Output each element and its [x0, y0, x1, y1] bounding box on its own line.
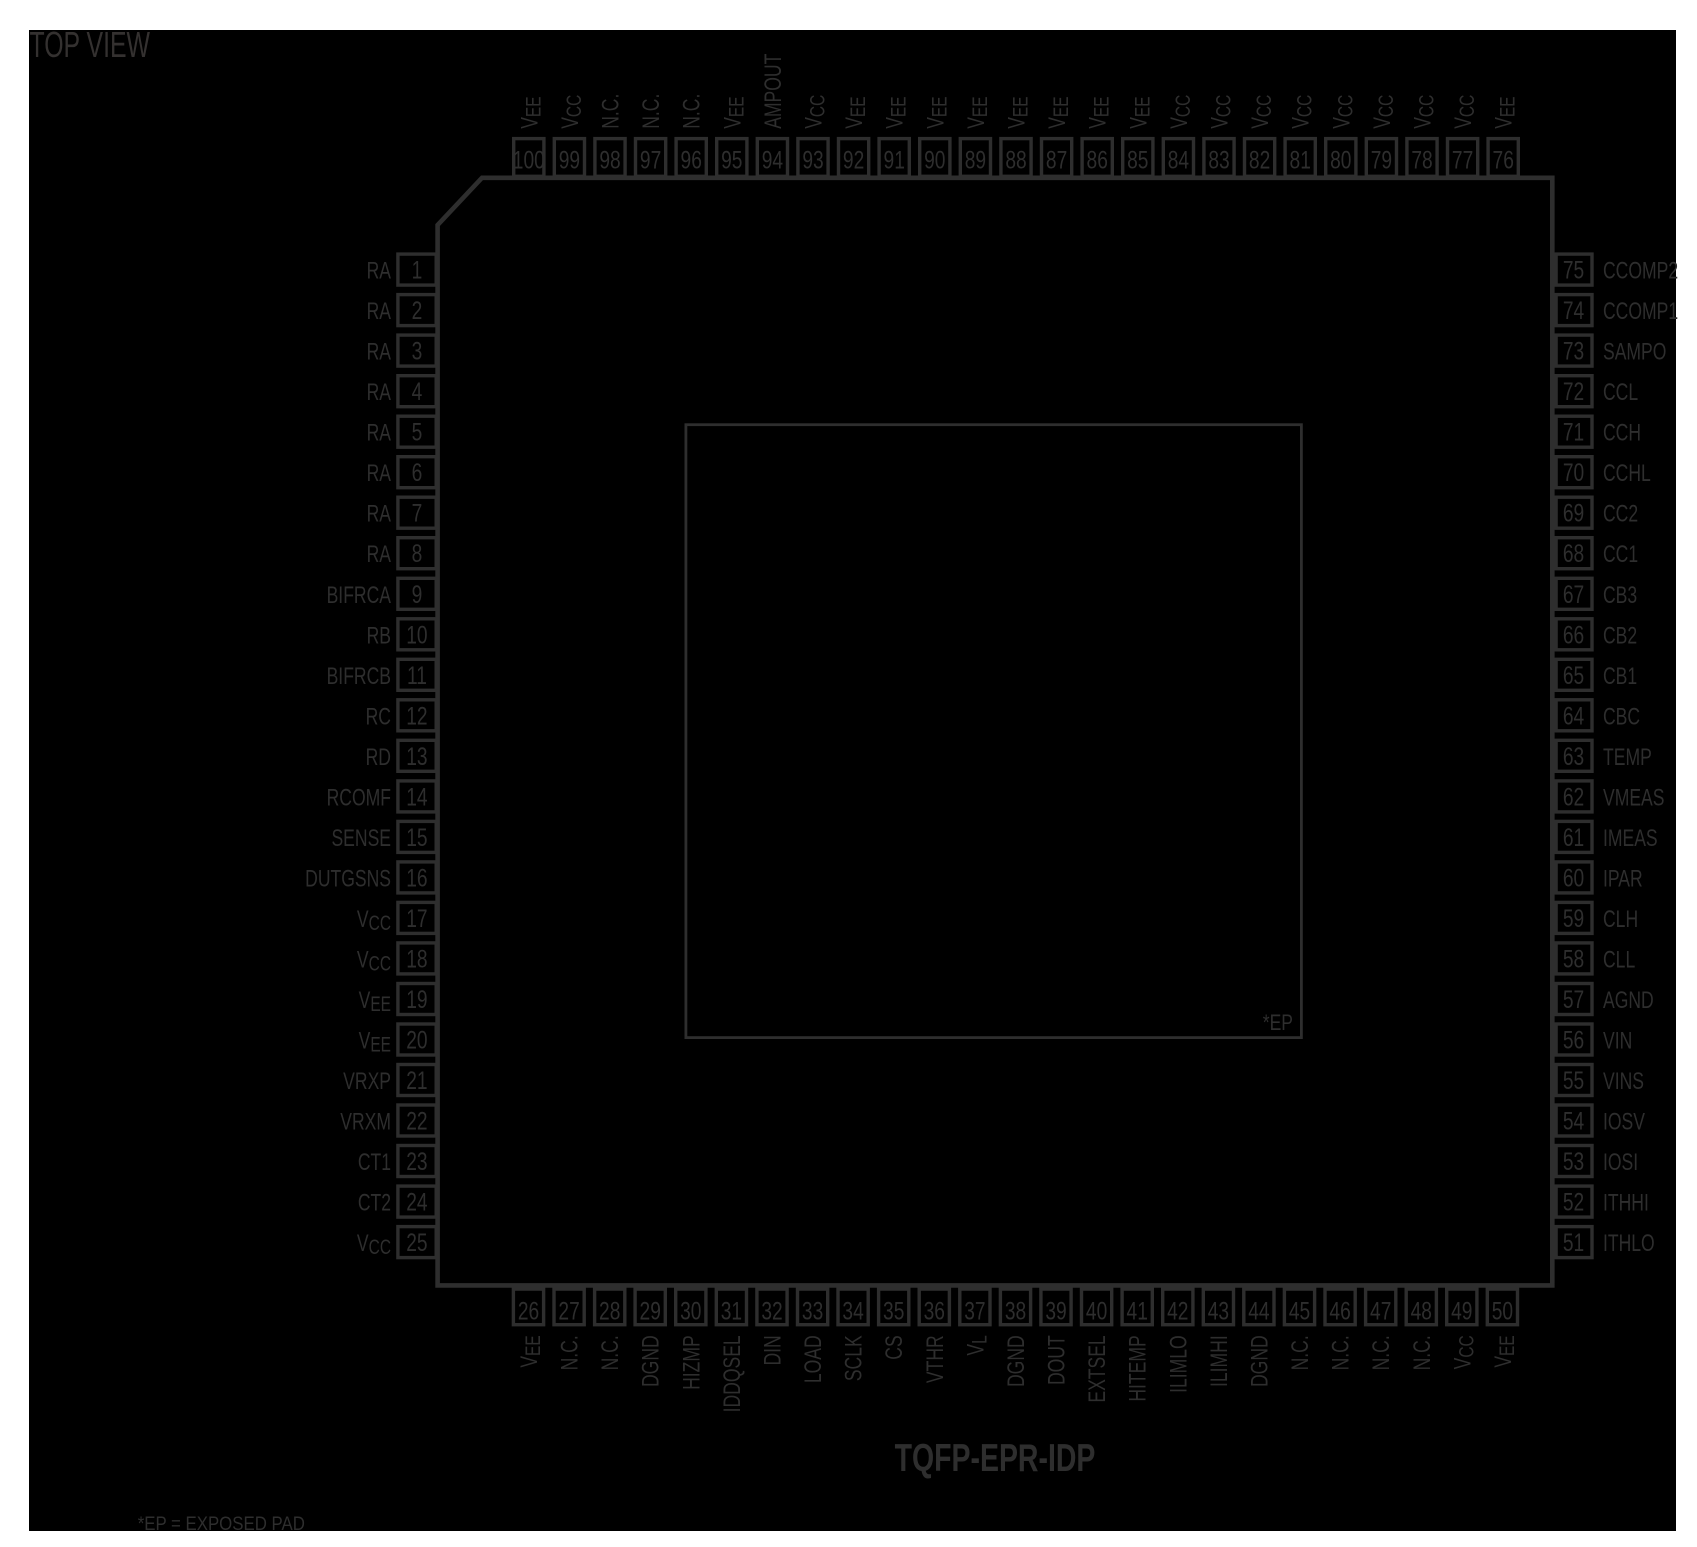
- svg-text:LOAD: LOAD: [799, 1335, 827, 1383]
- svg-text:91: 91: [884, 146, 905, 174]
- svg-text:49: 49: [1451, 1297, 1472, 1325]
- svg-text:93: 93: [802, 146, 823, 174]
- svg-text:CLL: CLL: [1603, 946, 1635, 974]
- svg-text:66: 66: [1563, 621, 1584, 649]
- svg-text:16: 16: [406, 864, 427, 892]
- svg-text:VCC: VCC: [800, 95, 829, 129]
- svg-text:VCC: VCC: [1327, 95, 1356, 129]
- svg-text:73: 73: [1563, 337, 1584, 365]
- svg-text:N.C.: N.C.: [556, 1335, 584, 1370]
- svg-text:18: 18: [406, 945, 427, 973]
- svg-text:VCC: VCC: [1206, 95, 1235, 129]
- svg-text:VCC: VCC: [357, 946, 391, 975]
- svg-text:BIFRCB: BIFRCB: [327, 662, 391, 690]
- svg-text:12: 12: [406, 702, 427, 730]
- svg-text:*EP = EXPOSED PAD: *EP = EXPOSED PAD: [138, 1511, 305, 1534]
- svg-text:RA: RA: [367, 459, 392, 487]
- svg-text:34: 34: [842, 1297, 863, 1325]
- svg-text:N.C.: N.C.: [1408, 1335, 1436, 1370]
- svg-text:78: 78: [1411, 146, 1432, 174]
- svg-text:RA: RA: [367, 378, 392, 406]
- svg-text:SAMPO: SAMPO: [1603, 338, 1666, 366]
- svg-text:54: 54: [1563, 1107, 1584, 1135]
- svg-text:85: 85: [1127, 146, 1148, 174]
- svg-text:22: 22: [406, 1107, 427, 1135]
- svg-text:CCOMP1: CCOMP1: [1603, 297, 1678, 325]
- svg-text:86: 86: [1087, 146, 1108, 174]
- svg-text:DGND: DGND: [1246, 1335, 1274, 1387]
- svg-text:CLH: CLH: [1603, 905, 1638, 933]
- svg-text:BIFRCA: BIFRCA: [327, 581, 392, 609]
- svg-text:VCC: VCC: [1368, 95, 1397, 129]
- svg-text:48: 48: [1411, 1297, 1432, 1325]
- svg-text:15: 15: [406, 824, 427, 852]
- svg-text:62: 62: [1563, 783, 1584, 811]
- svg-text:RA: RA: [367, 540, 392, 568]
- svg-text:70: 70: [1563, 459, 1584, 487]
- svg-text:IMEAS: IMEAS: [1603, 824, 1658, 852]
- svg-text:CCL: CCL: [1603, 378, 1638, 406]
- svg-text:VCC: VCC: [1246, 95, 1275, 129]
- svg-text:20: 20: [406, 1026, 427, 1054]
- svg-text:36: 36: [924, 1297, 945, 1325]
- svg-text:RA: RA: [367, 257, 392, 285]
- svg-text:VCC: VCC: [556, 95, 585, 129]
- svg-text:87: 87: [1046, 146, 1067, 174]
- svg-text:CT1: CT1: [358, 1148, 391, 1176]
- svg-text:TQFP-EPR-IDP: TQFP-EPR-IDP: [895, 1437, 1096, 1480]
- svg-text:CCOMP2: CCOMP2: [1603, 257, 1678, 285]
- svg-text:IOSI: IOSI: [1603, 1148, 1638, 1176]
- svg-text:VEE: VEE: [962, 96, 991, 128]
- svg-text:83: 83: [1208, 146, 1229, 174]
- svg-text:4: 4: [412, 378, 423, 406]
- svg-text:32: 32: [761, 1297, 782, 1325]
- svg-text:VCC: VCC: [1409, 95, 1438, 129]
- svg-text:88: 88: [1005, 146, 1026, 174]
- svg-text:71: 71: [1563, 418, 1584, 446]
- svg-text:65: 65: [1563, 661, 1584, 689]
- svg-text:57: 57: [1563, 986, 1584, 1014]
- svg-text:80: 80: [1330, 146, 1351, 174]
- svg-text:2: 2: [412, 297, 423, 325]
- svg-text:44: 44: [1248, 1297, 1269, 1325]
- svg-text:AMPOUT: AMPOUT: [759, 54, 787, 129]
- svg-text:92: 92: [843, 146, 864, 174]
- svg-text:9: 9: [412, 580, 423, 608]
- svg-text:1: 1: [412, 256, 423, 284]
- svg-text:13: 13: [406, 742, 427, 770]
- svg-text:N.C.: N.C.: [597, 94, 625, 129]
- svg-text:VEE: VEE: [515, 96, 544, 128]
- svg-text:55: 55: [1563, 1067, 1584, 1095]
- svg-text:SENSE: SENSE: [331, 824, 391, 852]
- svg-text:84: 84: [1168, 146, 1189, 174]
- svg-text:CS: CS: [880, 1335, 908, 1359]
- svg-text:98: 98: [599, 146, 620, 174]
- svg-text:19: 19: [406, 986, 427, 1014]
- svg-text:26: 26: [518, 1297, 539, 1325]
- svg-text:95: 95: [721, 146, 742, 174]
- svg-text:VEE: VEE: [1489, 1335, 1518, 1367]
- svg-text:56: 56: [1563, 1026, 1584, 1054]
- svg-text:90: 90: [924, 146, 945, 174]
- svg-text:DGND: DGND: [637, 1335, 665, 1387]
- svg-text:17: 17: [406, 905, 427, 933]
- svg-text:HIZMP: HIZMP: [677, 1335, 705, 1390]
- svg-text:RA: RA: [367, 338, 392, 366]
- svg-text:DOUT: DOUT: [1043, 1335, 1071, 1385]
- svg-text:N.C.: N.C.: [1327, 1335, 1355, 1370]
- svg-text:6: 6: [412, 459, 423, 487]
- svg-text:CT2: CT2: [358, 1189, 391, 1217]
- svg-text:VIN: VIN: [1603, 1027, 1632, 1055]
- svg-text:68: 68: [1563, 540, 1584, 568]
- svg-text:VEE: VEE: [881, 96, 910, 128]
- svg-text:79: 79: [1371, 146, 1392, 174]
- svg-text:59: 59: [1563, 905, 1584, 933]
- svg-text:IPAR: IPAR: [1603, 865, 1643, 893]
- svg-text:77: 77: [1452, 146, 1473, 174]
- svg-text:RC: RC: [366, 702, 391, 730]
- svg-text:N.C.: N.C.: [596, 1335, 624, 1370]
- svg-text:CC2: CC2: [1603, 500, 1638, 528]
- svg-text:10: 10: [406, 621, 427, 649]
- svg-text:N.C.: N.C.: [1367, 1335, 1395, 1370]
- svg-text:CB3: CB3: [1603, 581, 1637, 609]
- svg-text:VEE: VEE: [1490, 96, 1519, 128]
- svg-text:RA: RA: [367, 419, 392, 447]
- svg-text:RB: RB: [367, 621, 391, 649]
- svg-text:N.C.: N.C.: [678, 94, 706, 129]
- svg-text:RCOMF: RCOMF: [327, 784, 391, 812]
- svg-text:VEE: VEE: [1084, 96, 1113, 128]
- svg-text:63: 63: [1563, 742, 1584, 770]
- svg-text:61: 61: [1563, 824, 1584, 852]
- svg-text:ITHLO: ITHLO: [1603, 1229, 1655, 1257]
- svg-text:51: 51: [1563, 1229, 1584, 1257]
- svg-text:AGND: AGND: [1603, 986, 1654, 1014]
- svg-text:8: 8: [412, 540, 423, 568]
- svg-text:7: 7: [412, 499, 423, 527]
- svg-text:N.C.: N.C.: [1286, 1335, 1314, 1370]
- svg-text:96: 96: [681, 146, 702, 174]
- svg-text:VINS: VINS: [1603, 1067, 1644, 1095]
- svg-text:RA: RA: [367, 500, 392, 528]
- svg-text:74: 74: [1563, 297, 1584, 325]
- svg-text:SCLK: SCLK: [840, 1335, 868, 1381]
- svg-text:DIN: DIN: [759, 1335, 787, 1365]
- svg-text:97: 97: [640, 146, 661, 174]
- svg-text:*EP: *EP: [1263, 1011, 1293, 1036]
- svg-text:CCHL: CCHL: [1603, 459, 1651, 487]
- svg-text:100: 100: [513, 146, 545, 174]
- svg-text:37: 37: [964, 1297, 985, 1325]
- svg-text:28: 28: [599, 1297, 620, 1325]
- svg-text:35: 35: [883, 1297, 904, 1325]
- svg-text:89: 89: [965, 146, 986, 174]
- svg-text:VEE: VEE: [1003, 96, 1032, 128]
- svg-text:VRXP: VRXP: [343, 1067, 391, 1095]
- svg-text:VCC: VCC: [1448, 1335, 1477, 1369]
- svg-text:47: 47: [1370, 1297, 1391, 1325]
- svg-text:33: 33: [802, 1297, 823, 1325]
- svg-text:11: 11: [407, 661, 427, 689]
- svg-text:43: 43: [1208, 1297, 1229, 1325]
- svg-text:60: 60: [1563, 864, 1584, 892]
- svg-text:VMEAS: VMEAS: [1603, 784, 1664, 812]
- svg-text:42: 42: [1167, 1297, 1188, 1325]
- svg-text:VCC: VCC: [357, 1229, 391, 1258]
- svg-text:VEE: VEE: [718, 96, 747, 128]
- svg-text:VCC: VCC: [1165, 95, 1194, 129]
- svg-text:14: 14: [406, 783, 427, 811]
- svg-text:53: 53: [1563, 1148, 1584, 1176]
- svg-text:29: 29: [640, 1297, 661, 1325]
- svg-text:52: 52: [1563, 1188, 1584, 1216]
- svg-text:76: 76: [1493, 146, 1514, 174]
- svg-text:64: 64: [1563, 702, 1584, 730]
- svg-text:VEE: VEE: [840, 96, 869, 128]
- svg-text:CC1: CC1: [1603, 540, 1638, 568]
- svg-text:VEE: VEE: [921, 96, 950, 128]
- svg-text:VEE: VEE: [359, 1027, 391, 1056]
- svg-text:94: 94: [762, 146, 783, 174]
- svg-text:VEE: VEE: [1124, 96, 1153, 128]
- svg-text:69: 69: [1563, 499, 1584, 527]
- svg-text:ILIMHI: ILIMHI: [1205, 1335, 1233, 1387]
- svg-text:30: 30: [680, 1297, 701, 1325]
- svg-text:VCC: VCC: [1449, 95, 1478, 129]
- svg-text:31: 31: [721, 1297, 742, 1325]
- svg-text:IOSV: IOSV: [1603, 1108, 1646, 1136]
- svg-text:72: 72: [1563, 378, 1584, 406]
- svg-text:45: 45: [1289, 1297, 1310, 1325]
- svg-text:82: 82: [1249, 146, 1270, 174]
- svg-text:40: 40: [1086, 1297, 1107, 1325]
- svg-text:50: 50: [1492, 1297, 1513, 1325]
- svg-text:RD: RD: [366, 743, 391, 771]
- svg-text:38: 38: [1005, 1297, 1026, 1325]
- svg-text:VTHR: VTHR: [921, 1335, 949, 1383]
- svg-text:VEE: VEE: [359, 986, 391, 1015]
- svg-text:75: 75: [1563, 256, 1584, 284]
- svg-text:EXTSEL: EXTSEL: [1083, 1335, 1111, 1402]
- svg-text:81: 81: [1290, 146, 1311, 174]
- svg-text:DGND: DGND: [1002, 1335, 1030, 1387]
- svg-text:99: 99: [559, 146, 580, 174]
- svg-text:RA: RA: [367, 297, 392, 325]
- svg-text:25: 25: [406, 1229, 427, 1257]
- svg-text:CCH: CCH: [1603, 419, 1641, 447]
- svg-text:27: 27: [558, 1297, 579, 1325]
- svg-text:ITHHI: ITHHI: [1603, 1189, 1649, 1217]
- svg-text:58: 58: [1563, 945, 1584, 973]
- svg-text:TOP VIEW: TOP VIEW: [30, 24, 151, 65]
- svg-text:23: 23: [406, 1148, 427, 1176]
- svg-text:5: 5: [412, 418, 423, 446]
- svg-text:CBC: CBC: [1603, 702, 1640, 730]
- svg-text:41: 41: [1127, 1297, 1148, 1325]
- svg-text:CB1: CB1: [1603, 662, 1637, 690]
- svg-text:VEE: VEE: [1043, 96, 1072, 128]
- svg-text:HITEMP: HITEMP: [1124, 1335, 1152, 1401]
- svg-text:ILIMLO: ILIMLO: [1164, 1335, 1192, 1393]
- svg-text:TEMP: TEMP: [1603, 743, 1652, 771]
- svg-text:67: 67: [1563, 580, 1584, 608]
- svg-text:24: 24: [406, 1188, 427, 1216]
- svg-text:VL: VL: [962, 1335, 991, 1355]
- svg-text:IDDQSEL: IDDQSEL: [718, 1335, 746, 1412]
- svg-text:N.C.: N.C.: [637, 94, 665, 129]
- svg-text:3: 3: [412, 337, 423, 365]
- svg-text:VRXM: VRXM: [340, 1108, 391, 1136]
- svg-text:VCC: VCC: [357, 905, 391, 934]
- svg-text:39: 39: [1045, 1297, 1066, 1325]
- svg-text:46: 46: [1329, 1297, 1350, 1325]
- svg-text:DUTGSNS: DUTGSNS: [305, 865, 391, 893]
- svg-text:VEE: VEE: [515, 1335, 544, 1367]
- svg-text:21: 21: [406, 1067, 427, 1095]
- svg-text:CB2: CB2: [1603, 621, 1637, 649]
- svg-text:VCC: VCC: [1287, 95, 1316, 129]
